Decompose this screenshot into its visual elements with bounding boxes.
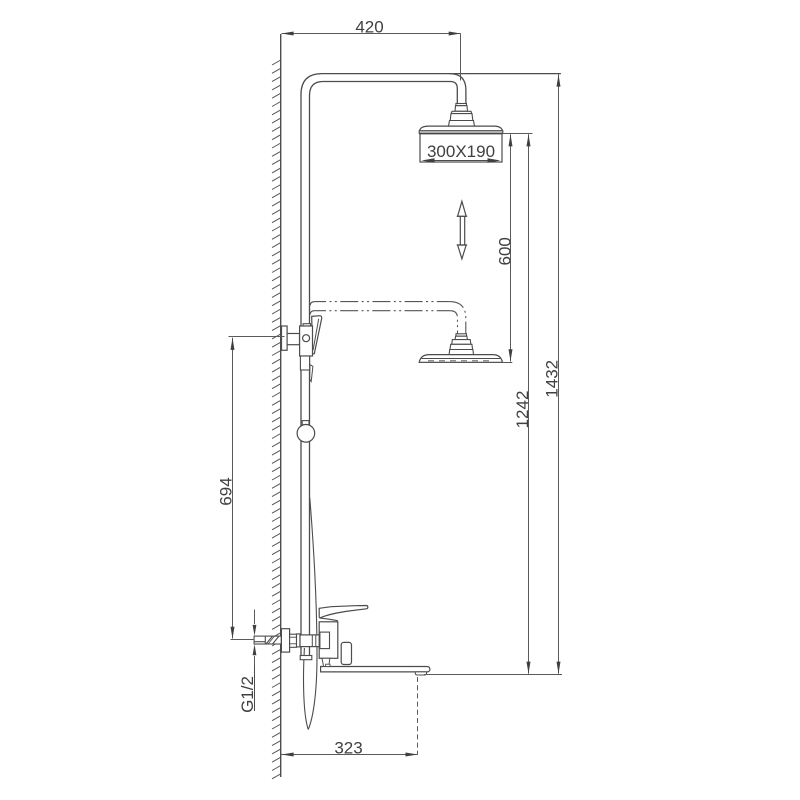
svg-text:694: 694 <box>217 477 236 505</box>
svg-text:600: 600 <box>495 237 514 265</box>
svg-text:1432: 1432 <box>542 360 561 398</box>
svg-text:1242: 1242 <box>513 391 532 429</box>
svg-text:323: 323 <box>334 738 362 757</box>
svg-text:300X190: 300X190 <box>427 142 495 161</box>
svg-text:420: 420 <box>355 17 383 36</box>
